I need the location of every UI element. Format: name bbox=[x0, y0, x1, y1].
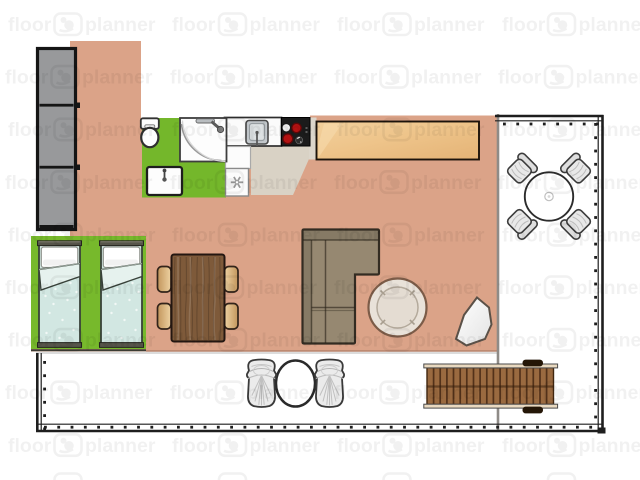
svg-text:planner: planner bbox=[247, 277, 318, 299]
svg-text:planner: planner bbox=[250, 224, 321, 246]
svg-text:planner: planner bbox=[250, 435, 321, 457]
svg-text:planner: planner bbox=[579, 435, 640, 457]
svg-text:floor: floor bbox=[502, 14, 546, 36]
svg-text:floor: floor bbox=[334, 382, 378, 404]
svg-text:planner: planner bbox=[82, 67, 153, 89]
svg-text:floor: floor bbox=[498, 382, 542, 404]
svg-text:planner: planner bbox=[579, 330, 640, 352]
svg-text:planner: planner bbox=[411, 172, 482, 194]
svg-text:floor: floor bbox=[5, 67, 49, 89]
svg-text:floor: floor bbox=[498, 67, 542, 89]
svg-text:floor: floor bbox=[8, 435, 52, 457]
svg-text:floor: floor bbox=[337, 119, 381, 141]
svg-text:floor: floor bbox=[337, 14, 381, 36]
svg-text:floor: floor bbox=[498, 172, 542, 194]
svg-text:floor: floor bbox=[337, 435, 381, 457]
svg-text:planner: planner bbox=[82, 172, 153, 194]
svg-text:planner: planner bbox=[85, 435, 156, 457]
svg-text:floor: floor bbox=[8, 119, 52, 141]
svg-text:floor: floor bbox=[8, 330, 52, 352]
svg-text:planner: planner bbox=[85, 330, 156, 352]
svg-text:planner: planner bbox=[247, 67, 318, 89]
svg-text:floor: floor bbox=[172, 119, 216, 141]
svg-text:planner: planner bbox=[414, 435, 485, 457]
svg-text:floor: floor bbox=[172, 224, 216, 246]
svg-text:planner: planner bbox=[85, 119, 156, 141]
svg-text:planner: planner bbox=[411, 67, 482, 89]
svg-text:planner: planner bbox=[250, 119, 321, 141]
svg-text:floor: floor bbox=[337, 330, 381, 352]
svg-text:planner: planner bbox=[579, 119, 640, 141]
svg-text:floor: floor bbox=[172, 435, 216, 457]
svg-text:planner: planner bbox=[576, 277, 640, 299]
svg-text:planner: planner bbox=[82, 277, 153, 299]
svg-text:floor: floor bbox=[334, 172, 378, 194]
svg-text:planner: planner bbox=[576, 67, 640, 89]
svg-text:floor: floor bbox=[5, 172, 49, 194]
svg-text:floor: floor bbox=[498, 277, 542, 299]
svg-text:floor: floor bbox=[8, 224, 52, 246]
svg-text:floor: floor bbox=[334, 277, 378, 299]
svg-text:floor: floor bbox=[502, 330, 546, 352]
svg-text:planner: planner bbox=[576, 382, 640, 404]
svg-text:planner: planner bbox=[414, 14, 485, 36]
svg-text:planner: planner bbox=[414, 224, 485, 246]
svg-text:floor: floor bbox=[334, 67, 378, 89]
svg-text:floor: floor bbox=[502, 224, 546, 246]
svg-text:planner: planner bbox=[247, 172, 318, 194]
svg-text:planner: planner bbox=[411, 277, 482, 299]
svg-text:planner: planner bbox=[414, 119, 485, 141]
svg-text:planner: planner bbox=[250, 330, 321, 352]
svg-text:floor: floor bbox=[337, 224, 381, 246]
svg-text:floor: floor bbox=[170, 277, 214, 299]
svg-text:floor: floor bbox=[502, 435, 546, 457]
svg-text:planner: planner bbox=[85, 224, 156, 246]
svg-text:planner: planner bbox=[82, 382, 153, 404]
svg-text:floor: floor bbox=[170, 67, 214, 89]
svg-text:planner: planner bbox=[85, 14, 156, 36]
svg-text:planner: planner bbox=[579, 14, 640, 36]
svg-text:planner: planner bbox=[247, 382, 318, 404]
svg-text:planner: planner bbox=[250, 14, 321, 36]
svg-text:planner: planner bbox=[576, 172, 640, 194]
svg-text:floor: floor bbox=[5, 382, 49, 404]
svg-text:floor: floor bbox=[5, 277, 49, 299]
svg-text:floor: floor bbox=[502, 119, 546, 141]
svg-text:planner: planner bbox=[414, 330, 485, 352]
svg-text:floor: floor bbox=[8, 14, 52, 36]
svg-text:floor: floor bbox=[170, 382, 214, 404]
svg-text:floor: floor bbox=[172, 14, 216, 36]
svg-text:floor: floor bbox=[172, 330, 216, 352]
svg-text:floor: floor bbox=[170, 172, 214, 194]
svg-text:planner: planner bbox=[411, 382, 482, 404]
svg-text:planner: planner bbox=[579, 224, 640, 246]
